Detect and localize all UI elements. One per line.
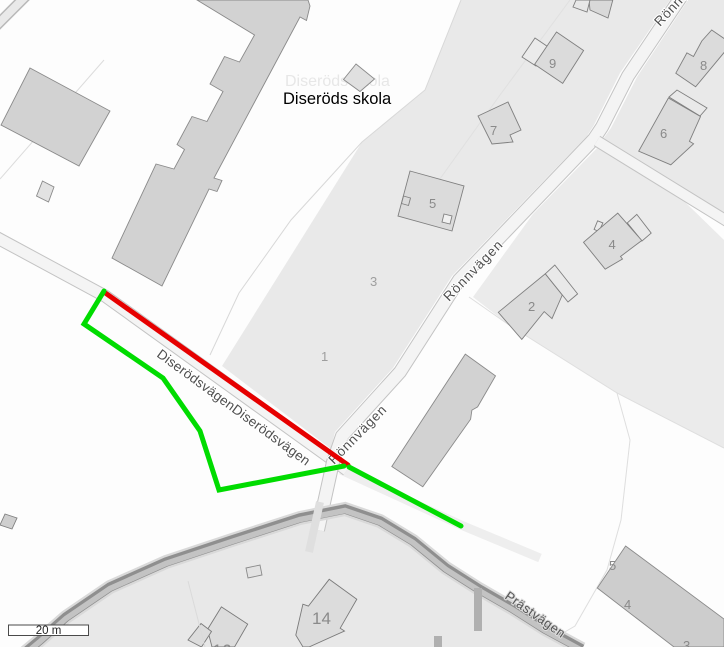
svg-text:Diseröds skola: Diseröds skola xyxy=(283,90,392,108)
svg-text:Diseröds skola: Diseröds skola xyxy=(285,73,390,90)
svg-text:1: 1 xyxy=(321,349,328,364)
svg-text:7: 7 xyxy=(490,123,497,138)
svg-text:6: 6 xyxy=(660,126,667,141)
svg-text:9: 9 xyxy=(549,56,556,71)
svg-text:20 m: 20 m xyxy=(36,625,62,637)
svg-text:4: 4 xyxy=(609,237,616,252)
svg-text:16: 16 xyxy=(213,641,232,647)
svg-text:4: 4 xyxy=(624,597,631,612)
svg-text:8: 8 xyxy=(700,58,707,73)
svg-text:3: 3 xyxy=(683,638,690,647)
svg-text:2: 2 xyxy=(528,299,535,314)
svg-text:5: 5 xyxy=(429,196,436,211)
svg-text:3: 3 xyxy=(370,274,377,289)
svg-text:5: 5 xyxy=(609,558,616,573)
svg-text:14: 14 xyxy=(312,609,331,628)
